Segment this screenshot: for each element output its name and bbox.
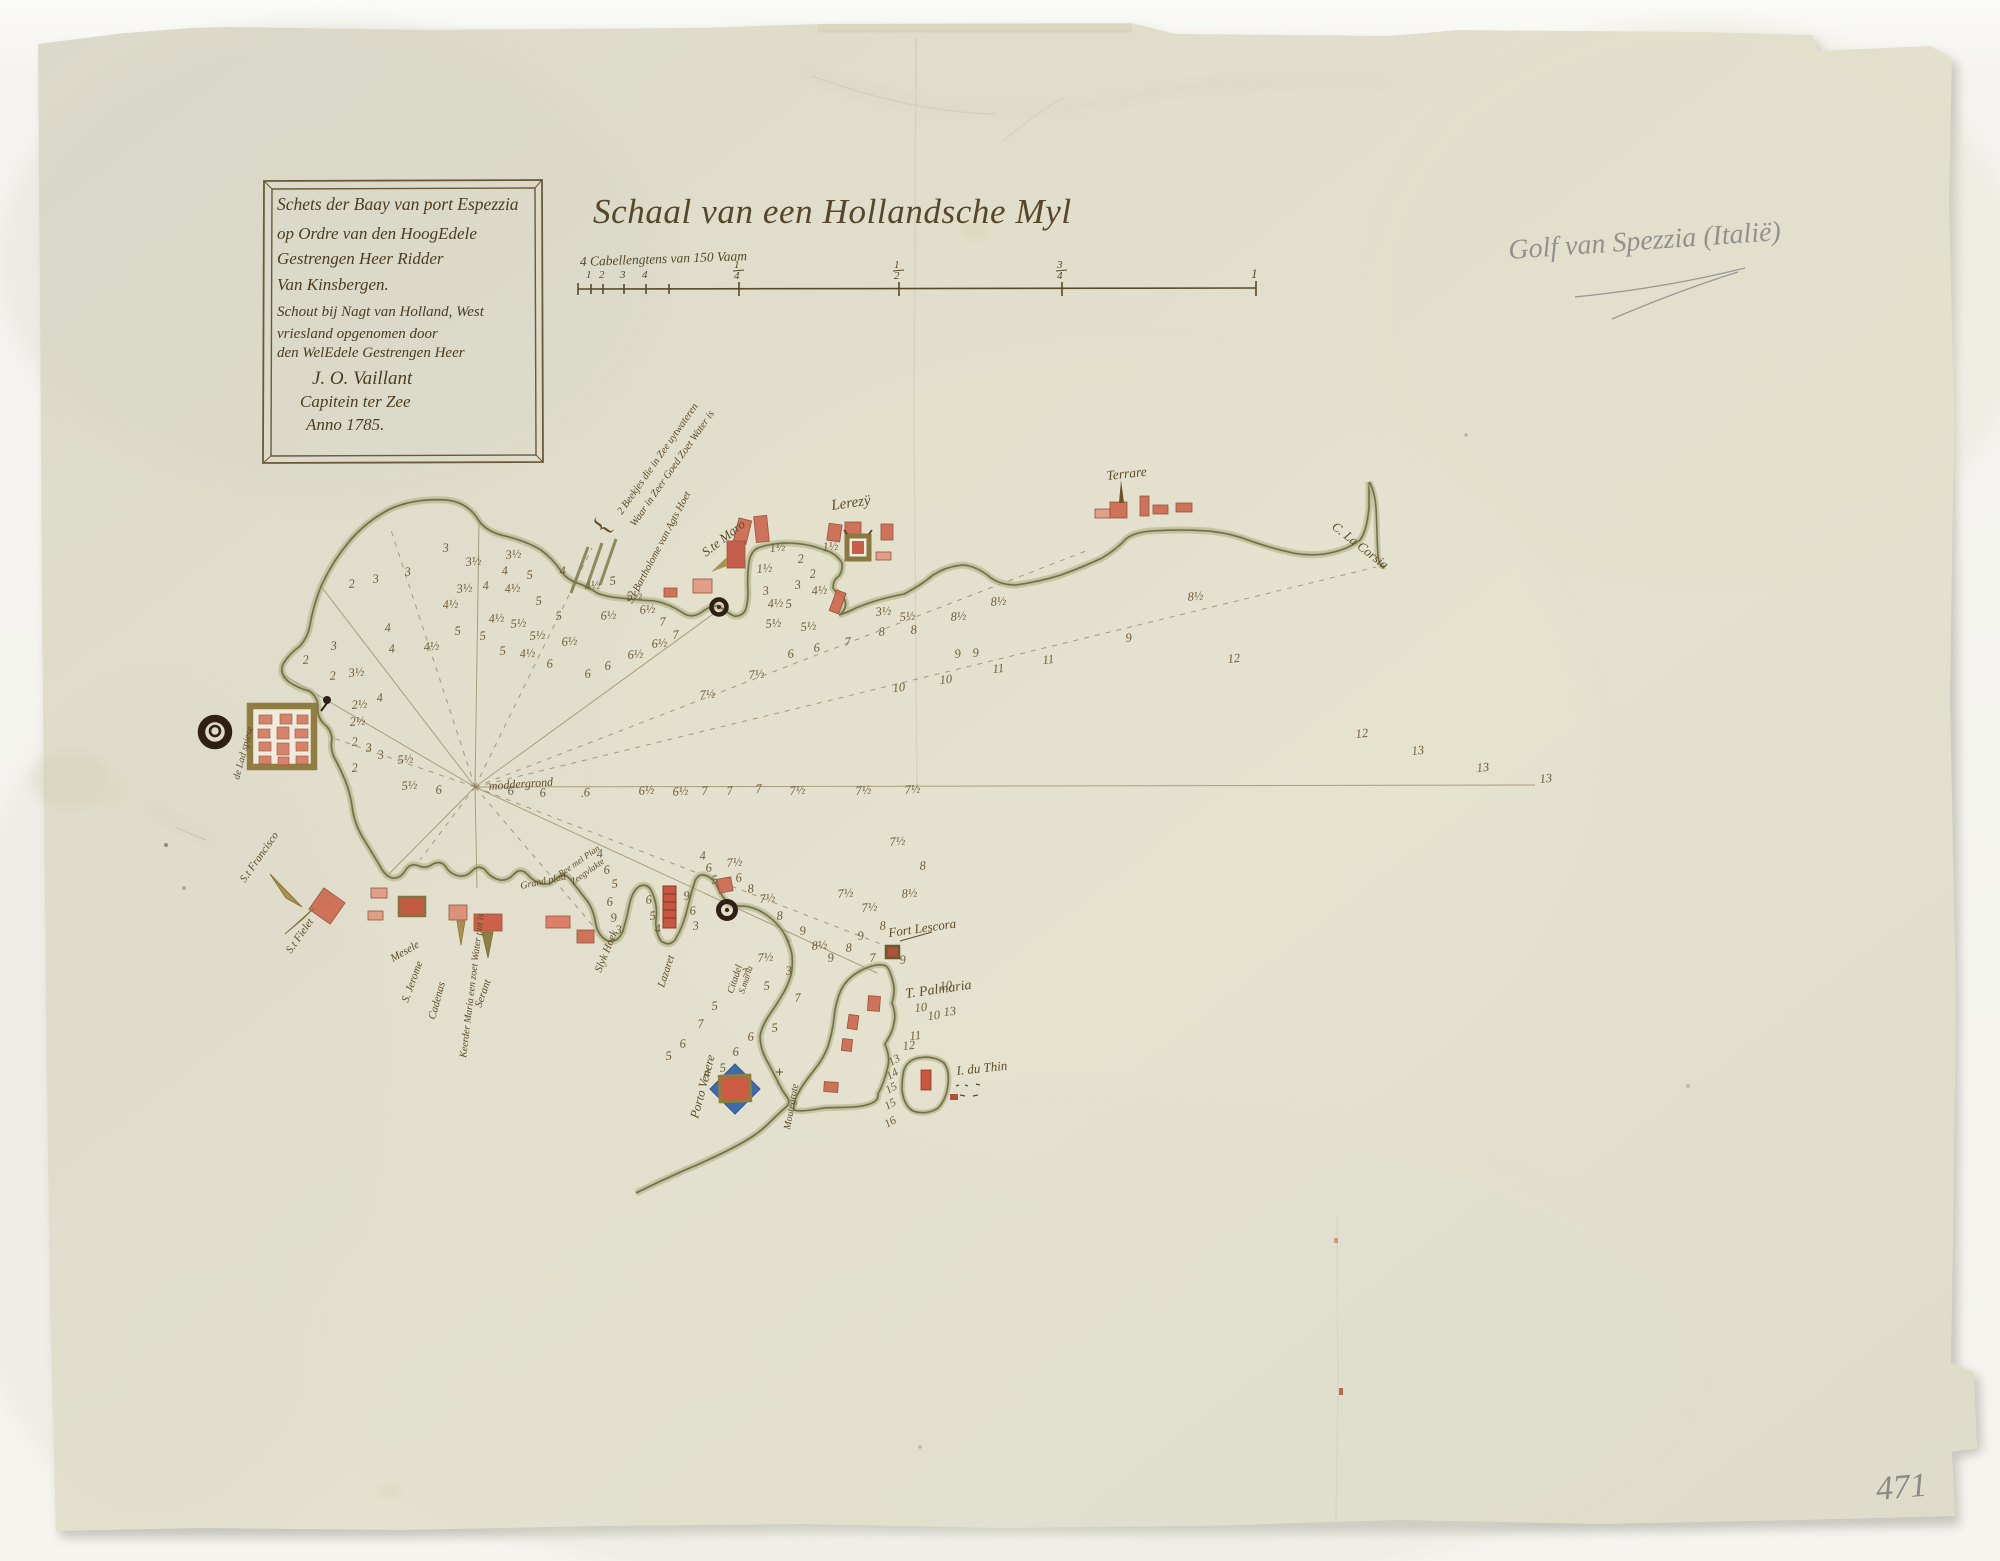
svg-text:op Ordre van den HoogEdele: op Ordre van den HoogEdele xyxy=(277,224,477,243)
svg-text:8½: 8½ xyxy=(950,608,968,624)
svg-text:4½: 4½ xyxy=(442,596,460,612)
svg-text:3½: 3½ xyxy=(464,553,483,569)
svg-text:10: 10 xyxy=(939,978,954,993)
svg-text:1½: 1½ xyxy=(769,539,787,555)
svg-text:vriesland opgenomen door: vriesland opgenomen door xyxy=(277,326,438,342)
svg-text:4½: 4½ xyxy=(584,577,602,593)
svg-text:7½: 7½ xyxy=(699,686,717,702)
svg-text:Van Kinsbergen.: Van Kinsbergen. xyxy=(277,275,389,294)
svg-text:5½: 5½ xyxy=(800,618,818,634)
svg-text:7½: 7½ xyxy=(748,666,766,682)
svg-text:3: 3 xyxy=(371,571,380,586)
svg-text:13: 13 xyxy=(943,1004,957,1019)
svg-text:12: 12 xyxy=(902,1038,916,1053)
svg-text:3: 3 xyxy=(364,740,373,755)
svg-text:Schaal van een Hollandsche Myl: Schaal van een Hollandsche Myl xyxy=(593,192,1072,231)
svg-text:6½: 6½ xyxy=(600,607,618,623)
svg-text:10: 10 xyxy=(927,1008,942,1023)
svg-text:5½: 5½ xyxy=(529,627,547,643)
svg-text:4: 4 xyxy=(734,270,740,282)
svg-text:4½: 4½ xyxy=(519,645,537,661)
svg-text:3½: 3½ xyxy=(455,580,474,596)
svg-text:Anno 1785.: Anno 1785. xyxy=(305,415,384,434)
svg-text:11: 11 xyxy=(992,661,1005,676)
svg-text:Schout bij Nagt van Holland, W: Schout bij Nagt van Holland, West xyxy=(277,304,485,320)
svg-text:3: 3 xyxy=(403,564,412,579)
svg-text:7½: 7½ xyxy=(904,781,922,797)
svg-text:6½: 6½ xyxy=(627,646,645,662)
svg-text:3: 3 xyxy=(441,540,450,555)
svg-text:10: 10 xyxy=(939,672,954,687)
svg-text:12: 12 xyxy=(1227,651,1241,666)
svg-text:3½: 3½ xyxy=(347,664,366,680)
svg-text:1½: 1½ xyxy=(822,538,840,554)
svg-text:6½: 6½ xyxy=(639,601,657,617)
svg-text:12: 12 xyxy=(1355,726,1369,741)
svg-text:8½: 8½ xyxy=(901,885,919,901)
svg-text:8½: 8½ xyxy=(990,593,1008,609)
svg-text:7½: 7½ xyxy=(726,854,744,870)
svg-text:6½: 6½ xyxy=(561,633,579,649)
svg-text:471: 471 xyxy=(1874,1467,1928,1508)
svg-text:3: 3 xyxy=(793,577,802,592)
svg-text:J. O. Vaillant: J. O. Vaillant xyxy=(312,368,413,389)
svg-text:10: 10 xyxy=(892,680,907,695)
svg-text:2: 2 xyxy=(894,270,900,282)
svg-text:7½: 7½ xyxy=(757,949,775,965)
svg-text:2: 2 xyxy=(599,269,605,281)
svg-text:3: 3 xyxy=(376,747,385,762)
svg-text:4½: 4½ xyxy=(811,582,829,598)
svg-text:5½: 5½ xyxy=(401,777,419,793)
svg-text:13: 13 xyxy=(1411,743,1425,758)
svg-text:3: 3 xyxy=(761,583,770,598)
svg-text:4½: 4½ xyxy=(488,610,506,626)
svg-text:6½: 6½ xyxy=(638,782,656,798)
svg-text:Capitein ter Zee: Capitein ter Zee xyxy=(300,392,411,411)
svg-text:Gestrengen Heer Ridder: Gestrengen Heer Ridder xyxy=(277,249,444,268)
svg-text:4½: 4½ xyxy=(767,595,785,611)
svg-text:13: 13 xyxy=(1539,771,1553,786)
svg-text:4½: 4½ xyxy=(423,638,441,654)
svg-text:5½: 5½ xyxy=(765,615,783,631)
svg-text:7½: 7½ xyxy=(759,890,777,906)
svg-text:Schets der Baay van port Espez: Schets der Baay van port Espezzia xyxy=(277,194,519,214)
svg-text:3: 3 xyxy=(784,963,793,978)
svg-text:3: 3 xyxy=(614,922,623,937)
svg-text:4: 4 xyxy=(1057,270,1063,282)
svg-text:den WelEdele Gestrengen Heer: den WelEdele Gestrengen Heer xyxy=(277,345,465,361)
svg-text:13: 13 xyxy=(1476,760,1490,775)
svg-text:3: 3 xyxy=(329,638,338,653)
svg-text:6½: 6½ xyxy=(672,783,690,799)
svg-text:7½: 7½ xyxy=(789,782,807,798)
svg-text:4: 4 xyxy=(642,269,648,281)
svg-text:5½: 5½ xyxy=(899,608,917,624)
svg-text:5½: 5½ xyxy=(397,751,415,767)
svg-text:2½: 2½ xyxy=(351,696,369,712)
svg-text:8½: 8½ xyxy=(1187,588,1205,604)
svg-text:5½: 5½ xyxy=(510,615,528,631)
svg-text:7½: 7½ xyxy=(889,833,907,849)
svg-text:3½: 3½ xyxy=(504,546,523,562)
svg-text:3½: 3½ xyxy=(874,603,893,619)
svg-text:7½: 7½ xyxy=(861,899,879,915)
svg-text:4½: 4½ xyxy=(504,580,522,596)
svg-text:11: 11 xyxy=(1042,652,1055,667)
svg-text:7½: 7½ xyxy=(855,782,873,798)
svg-text:5½: 5½ xyxy=(626,587,644,603)
svg-text:3: 3 xyxy=(619,269,626,281)
svg-text:1: 1 xyxy=(1251,266,1258,281)
svg-text:1½: 1½ xyxy=(756,560,774,576)
svg-text:1: 1 xyxy=(586,269,592,281)
svg-text:6½: 6½ xyxy=(651,635,669,651)
svg-text:2½: 2½ xyxy=(349,713,367,729)
svg-text:3: 3 xyxy=(691,918,700,933)
svg-text:7½: 7½ xyxy=(837,885,855,901)
